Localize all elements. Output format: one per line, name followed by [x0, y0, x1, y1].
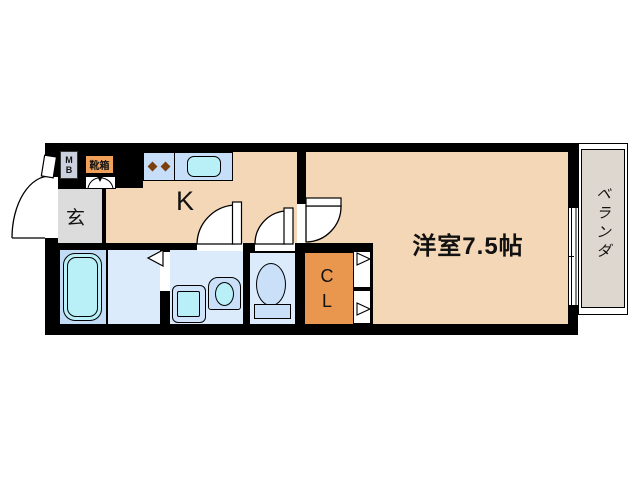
shoe-box-label: 靴箱	[90, 157, 110, 172]
closet-floor	[305, 253, 353, 324]
main-room-label: 洋室7.5帖	[368, 226, 568, 261]
kitchen-counter-divider	[174, 152, 175, 181]
floorplan-canvas: MB 靴箱	[0, 0, 638, 480]
closet-label-l: L	[315, 291, 339, 312]
entrance-door-opening	[45, 177, 58, 238]
entrance-label: 玄	[66, 203, 85, 230]
toilet-door-opening	[255, 243, 295, 251]
washing-machine-pan-icon	[172, 285, 206, 323]
bathtub-rim	[67, 257, 98, 317]
bathroom-washing-floor	[108, 250, 160, 324]
meter-box-label-m: M	[65, 155, 73, 165]
closet-label-c: C	[315, 266, 339, 287]
washroom-door-opening	[197, 243, 243, 251]
bathtub-icon	[63, 253, 102, 321]
closet-door-panel-bottom	[353, 290, 371, 324]
kitchen-sink-icon	[187, 156, 221, 177]
bathroom-door-opening	[160, 252, 170, 291]
washbasin-bowl	[215, 282, 234, 306]
main-room-door-opening	[297, 204, 306, 243]
shoe-box-doors	[85, 176, 116, 189]
veranda-label: ベランダ	[592, 186, 613, 298]
washbasin-icon	[208, 277, 241, 310]
meter-box: MB	[60, 151, 78, 179]
washing-machine-icon	[177, 291, 200, 317]
shoe-box: 靴箱	[85, 155, 114, 174]
toilet-tank-icon	[254, 304, 291, 319]
kitchen-label: K	[176, 186, 194, 217]
veranda-window	[569, 208, 578, 305]
toilet-icon	[256, 263, 286, 306]
kitchen-floor-lower	[106, 188, 143, 243]
meter-box-label-b: B	[66, 165, 73, 175]
